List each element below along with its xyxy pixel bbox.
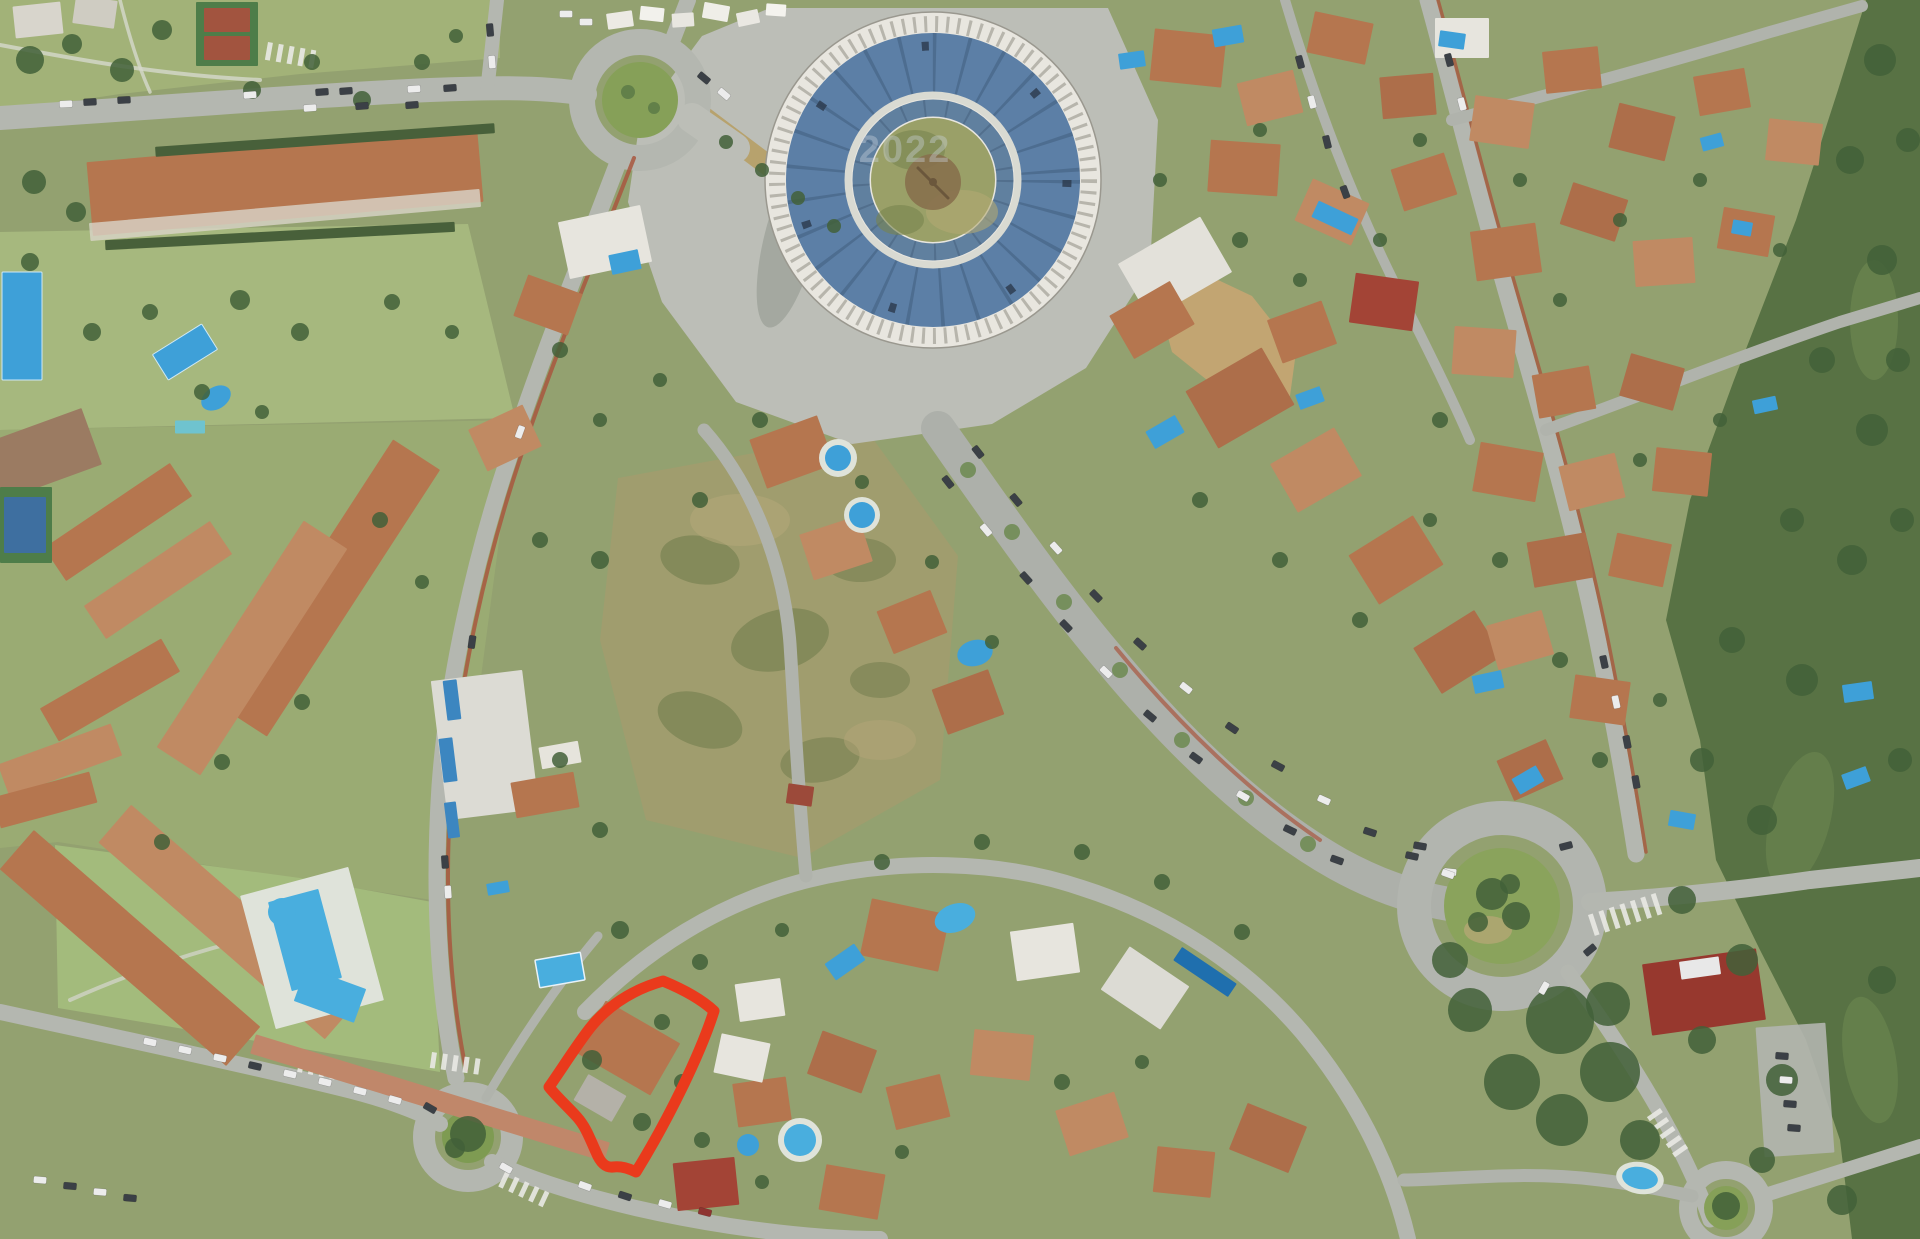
tennis-court (204, 8, 250, 32)
tree (1747, 805, 1777, 835)
tree (1054, 1074, 1070, 1090)
tree (895, 1145, 909, 1159)
tree (755, 1175, 769, 1189)
building-roof (713, 1033, 770, 1083)
tree (1536, 1094, 1588, 1146)
building-roof (1306, 11, 1373, 65)
tree (1888, 748, 1912, 772)
tree (752, 412, 768, 428)
building-roof (1379, 73, 1436, 120)
parked-car (303, 104, 316, 112)
tree (1253, 123, 1267, 137)
tree (654, 1014, 670, 1030)
parked-car (83, 98, 96, 106)
tree (1352, 612, 1368, 628)
building-roof (1652, 447, 1712, 497)
building-roof (1765, 118, 1823, 165)
tree (1580, 1042, 1640, 1102)
tree (110, 58, 134, 82)
parked-car (580, 19, 593, 26)
roundabout-island (602, 62, 678, 138)
tree (1484, 1054, 1540, 1110)
tree (1432, 942, 1468, 978)
parked-car (407, 85, 420, 93)
tree (960, 462, 976, 478)
tree (1232, 232, 1248, 248)
satellite-map-canvas[interactable]: 2022 (0, 0, 1920, 1239)
tree (142, 304, 158, 320)
building-roof (818, 1164, 885, 1220)
parked-car (560, 11, 573, 18)
building-roof (1470, 223, 1542, 282)
bullring (929, 178, 937, 186)
terrain-patch (850, 662, 910, 698)
tree (1293, 273, 1307, 287)
building-roof (1560, 182, 1629, 242)
building-roof (1608, 533, 1672, 588)
tree (692, 492, 708, 508)
building-roof (807, 1030, 877, 1093)
tree (925, 555, 939, 569)
tree (1373, 233, 1387, 247)
tree (1867, 245, 1897, 275)
tree (255, 405, 269, 419)
parked-car (443, 84, 456, 92)
building-roof (1486, 610, 1554, 670)
tree (1719, 627, 1745, 653)
tree (1749, 1147, 1775, 1173)
parked-car (339, 87, 352, 95)
tree (1864, 44, 1896, 76)
building-roof (1632, 237, 1695, 287)
tree (1896, 128, 1920, 152)
parked-car (1775, 1052, 1788, 1060)
tree (1690, 748, 1714, 772)
swimming-pool (1668, 810, 1696, 830)
building-roof (1569, 674, 1631, 725)
tree (1592, 752, 1608, 768)
tree (291, 323, 309, 341)
tree (445, 1138, 465, 1158)
tree (719, 135, 733, 149)
tree (1868, 966, 1896, 994)
tree (152, 20, 172, 40)
building-roof (1469, 95, 1535, 149)
tree (874, 854, 890, 870)
building-roof (1153, 1146, 1215, 1198)
tree (1553, 293, 1567, 307)
building-roof (1693, 68, 1751, 116)
tree (1856, 414, 1888, 446)
tree (66, 202, 86, 222)
tennis-court (204, 36, 250, 60)
building-roof (1558, 453, 1625, 512)
parked-car (1363, 827, 1378, 838)
parked-car (1179, 681, 1194, 695)
tree (974, 834, 990, 850)
parked-car (1271, 760, 1286, 772)
tree (194, 384, 210, 400)
tree (775, 923, 789, 937)
building-roof (1472, 442, 1544, 502)
tree (621, 85, 635, 99)
parked-car (468, 635, 477, 649)
swimming-pool (268, 898, 296, 926)
building-roof (970, 1029, 1034, 1081)
tree (1234, 924, 1250, 940)
tree (1890, 508, 1914, 532)
tree (592, 822, 608, 838)
parked-car (243, 91, 256, 99)
tree (1300, 836, 1316, 852)
tree (591, 551, 609, 569)
tree (1693, 173, 1707, 187)
tree (1413, 133, 1427, 147)
tree (414, 54, 430, 70)
swimming-pool (1700, 132, 1725, 151)
parked-car (123, 1194, 137, 1202)
tree (1827, 1185, 1857, 1215)
tree (1174, 732, 1190, 748)
tree (653, 373, 667, 387)
swimming-pool (737, 1134, 759, 1156)
tree (1153, 173, 1167, 187)
parked-car (444, 885, 452, 898)
tree (1713, 413, 1727, 427)
tree (1056, 594, 1072, 610)
market-tent (639, 6, 664, 22)
building-roof (1608, 103, 1675, 162)
tree (1633, 453, 1647, 467)
tree (304, 54, 320, 70)
tree (445, 325, 459, 339)
parking-lot (1756, 1023, 1835, 1158)
bullring (876, 205, 924, 235)
tree (449, 29, 463, 43)
tree (1552, 652, 1568, 668)
swimming-pool (175, 421, 205, 434)
swimming-pool (849, 502, 875, 528)
building-roof (886, 1074, 951, 1130)
tree (1837, 545, 1867, 575)
tree (16, 46, 44, 74)
swimming-pool (1471, 670, 1504, 694)
tree (1502, 902, 1530, 930)
building-roof (12, 2, 63, 39)
parked-car (1133, 637, 1147, 651)
tree (1423, 513, 1437, 527)
swimming-pool (535, 952, 585, 988)
terrain-patch (0, 224, 515, 430)
building-roof (735, 978, 786, 1022)
building-roof (1451, 326, 1516, 378)
tree (1836, 146, 1864, 174)
parked-car (315, 88, 328, 96)
tree (633, 1113, 651, 1131)
parked-car (1049, 541, 1063, 555)
tree (1613, 213, 1627, 227)
tree (62, 34, 82, 54)
tree (827, 219, 841, 233)
tree (1773, 243, 1787, 257)
tree (694, 1132, 710, 1148)
tree (1786, 664, 1818, 696)
parked-car (1783, 1100, 1796, 1108)
tree (552, 752, 568, 768)
building-roof (1207, 140, 1280, 197)
tree (1112, 662, 1128, 678)
building-roof (860, 898, 950, 971)
tree (1780, 508, 1804, 532)
market-tent (766, 3, 787, 16)
tree (83, 323, 101, 341)
building-roof (1229, 1103, 1307, 1173)
swimming-pool (1145, 415, 1184, 449)
tree (648, 102, 660, 114)
tree (1688, 1026, 1716, 1054)
market-tent (606, 10, 634, 29)
parked-car (63, 1182, 77, 1190)
building-roof (1542, 46, 1602, 94)
market-tent (702, 2, 730, 22)
building-roof (732, 1076, 792, 1127)
tree (552, 342, 568, 358)
parked-car (355, 102, 368, 110)
building-roof (786, 783, 815, 806)
tree (1192, 492, 1208, 508)
building-roof (1270, 427, 1362, 512)
parked-car (1225, 721, 1240, 734)
tree (1135, 1055, 1149, 1069)
swimming-pool (825, 445, 851, 471)
tree (1513, 173, 1527, 187)
parked-car (405, 101, 418, 109)
tree (593, 413, 607, 427)
tree (294, 694, 310, 710)
swimming-pool (2, 272, 42, 380)
parked-car (1089, 589, 1103, 603)
imagery-date-watermark: 2022 (859, 129, 952, 171)
satellite-map[interactable]: 2022 (0, 0, 1920, 1239)
parked-car (59, 100, 72, 108)
tree (415, 575, 429, 589)
building-roof (1010, 923, 1080, 981)
swimming-pool (825, 943, 866, 980)
building-roof (1391, 152, 1458, 211)
parked-car (117, 96, 130, 104)
market-tent (672, 12, 695, 28)
tree (1468, 912, 1488, 932)
parked-car (93, 1188, 107, 1196)
building-roof (1349, 273, 1419, 331)
tennis-court (4, 497, 46, 553)
swimming-pool (1212, 25, 1245, 48)
parked-car (1787, 1124, 1800, 1132)
building-roof (1055, 1092, 1129, 1157)
tree (1586, 982, 1630, 1026)
tree (791, 191, 805, 205)
building-roof (1237, 70, 1304, 127)
tree (1448, 988, 1492, 1032)
tree (1154, 874, 1170, 890)
terrain-patch (844, 720, 916, 760)
building-roof (1348, 515, 1443, 604)
tree (214, 754, 230, 770)
tree (1432, 412, 1448, 428)
tree (154, 834, 170, 850)
tree (855, 475, 869, 489)
tree (1653, 693, 1667, 707)
tree (611, 921, 629, 939)
parked-car (1317, 794, 1332, 806)
parked-car (33, 1176, 47, 1184)
tree (1809, 347, 1835, 373)
tree (532, 532, 548, 548)
tree (1726, 944, 1758, 976)
tree (1500, 874, 1520, 894)
parked-car (441, 855, 449, 868)
tree (1886, 348, 1910, 372)
tree (692, 954, 708, 970)
tree (755, 163, 769, 177)
tree (1712, 1192, 1740, 1220)
building-roof (673, 1157, 740, 1211)
tree (372, 512, 388, 528)
tree (1668, 886, 1696, 914)
tree (1620, 1120, 1660, 1160)
tree (1074, 844, 1090, 860)
parked-car (1779, 1076, 1792, 1084)
road (487, 0, 497, 92)
tree (384, 294, 400, 310)
tree (1492, 552, 1508, 568)
tree (1526, 986, 1594, 1054)
tree (230, 290, 250, 310)
tree (582, 1050, 602, 1070)
parked-car (488, 55, 496, 69)
tree (21, 253, 39, 271)
tree (1272, 552, 1288, 568)
swimming-pool (486, 880, 510, 896)
tree (1004, 524, 1020, 540)
parked-car (486, 23, 494, 37)
tree (985, 635, 999, 649)
tree (22, 170, 46, 194)
swimming-pool (784, 1124, 816, 1156)
swimming-pool (1295, 386, 1325, 410)
